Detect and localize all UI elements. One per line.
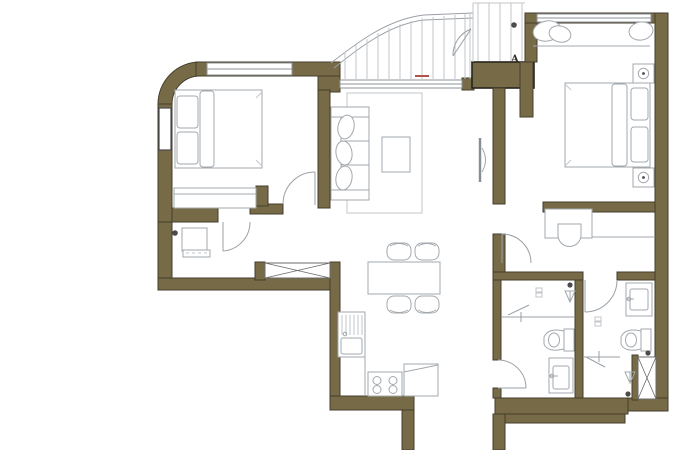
valve-icon: [536, 288, 542, 297]
bathroom2-door: [585, 280, 617, 312]
bed1-blanket-fold: [200, 91, 214, 167]
bath-bottom-stub: [493, 414, 505, 450]
corridor-wall-upper: [493, 88, 505, 204]
dresser: [174, 188, 256, 208]
bedroom2: [531, 18, 654, 187]
toilet-2: [621, 329, 651, 351]
bed2-blanket-fold: [612, 84, 627, 166]
bath-bottom-step: [505, 414, 625, 423]
dining-table: [368, 262, 440, 294]
drain-dot: [625, 391, 630, 396]
nightstand-top: [633, 64, 654, 83]
bathroom2: [583, 280, 656, 399]
floor-plan-canvas: A: [0, 0, 675, 450]
dining-area: [368, 243, 440, 313]
bathroom1-door: [498, 360, 526, 388]
balcony-railing-outer: [331, 13, 473, 63]
bedroom1-living-wall: [318, 90, 330, 208]
right-exterior-wall: [655, 13, 668, 398]
valve-icon: [595, 317, 601, 326]
washbasin-1: [549, 358, 573, 393]
balcony-door: [453, 29, 471, 56]
coffee-table: [382, 137, 410, 172]
entry-hall: [172, 222, 330, 278]
bedroom1-door: [283, 172, 315, 205]
ac-ledge-hatch: [478, 3, 522, 61]
bed1-pillow-top: [177, 96, 198, 128]
shower-screen-brace: [508, 305, 529, 315]
corridor-door: [502, 234, 531, 263]
bed2-pillow-bottom: [631, 127, 648, 162]
sofa: [331, 107, 369, 200]
balcony-railing-inner: [334, 18, 473, 68]
toilet-1: [544, 329, 574, 351]
bed1-pillow-bottom: [177, 132, 198, 164]
bath-top-wall-right: [617, 272, 655, 280]
kitchen: [338, 312, 438, 396]
living-balcony-slider: [340, 80, 462, 88]
bedroom1: [174, 90, 315, 208]
bedroom1-bottom-wall-a: [172, 208, 218, 222]
entry-left-wall: [158, 222, 172, 280]
kitchen-bottom-wall: [330, 396, 414, 410]
drain-dot: [645, 350, 650, 355]
section-marker-a: A: [510, 54, 519, 65]
nightstand-bottom: [633, 168, 654, 187]
shower-head-icon: [565, 291, 575, 302]
desk-chair: [558, 224, 581, 247]
closet-left-pier: [255, 262, 265, 280]
tv: [480, 138, 486, 182]
washbasin-2: [626, 283, 652, 316]
bath1-left-wall: [493, 280, 501, 360]
bath-bottom-wall: [495, 398, 628, 414]
study-nook: [502, 209, 655, 263]
bed2-pillow-top: [631, 88, 648, 120]
stove: [368, 372, 402, 396]
shower-screen-2-brace: [586, 357, 605, 367]
drain-dot: [567, 282, 572, 287]
bathroom1: [498, 282, 575, 393]
bedroom1-side-window: [159, 108, 171, 150]
bath-top-wall-left: [493, 272, 583, 280]
entry-dot: [172, 230, 178, 236]
bedroom2-window: [537, 14, 651, 22]
bedroom1-window: [207, 63, 292, 75]
entry-inner-door: [223, 222, 250, 251]
living-room: [331, 93, 486, 213]
bedroom1-wall-pier: [256, 186, 268, 206]
service-shaft: [638, 357, 656, 399]
entry-closet: [265, 263, 330, 278]
bath1-left-wall-stub: [493, 388, 501, 398]
floor-plan-drawing: A: [0, 0, 675, 450]
bedroom2-left-wall: [520, 62, 533, 117]
fridge: [404, 364, 438, 396]
kitchen-bottom-stub: [402, 410, 414, 450]
bath-divider-wall: [575, 280, 583, 398]
kitchen-sink: [338, 312, 365, 357]
entry-bottom-wall: [158, 278, 336, 290]
entry-console: [182, 228, 207, 251]
drain-dot-balcony: [511, 22, 517, 28]
